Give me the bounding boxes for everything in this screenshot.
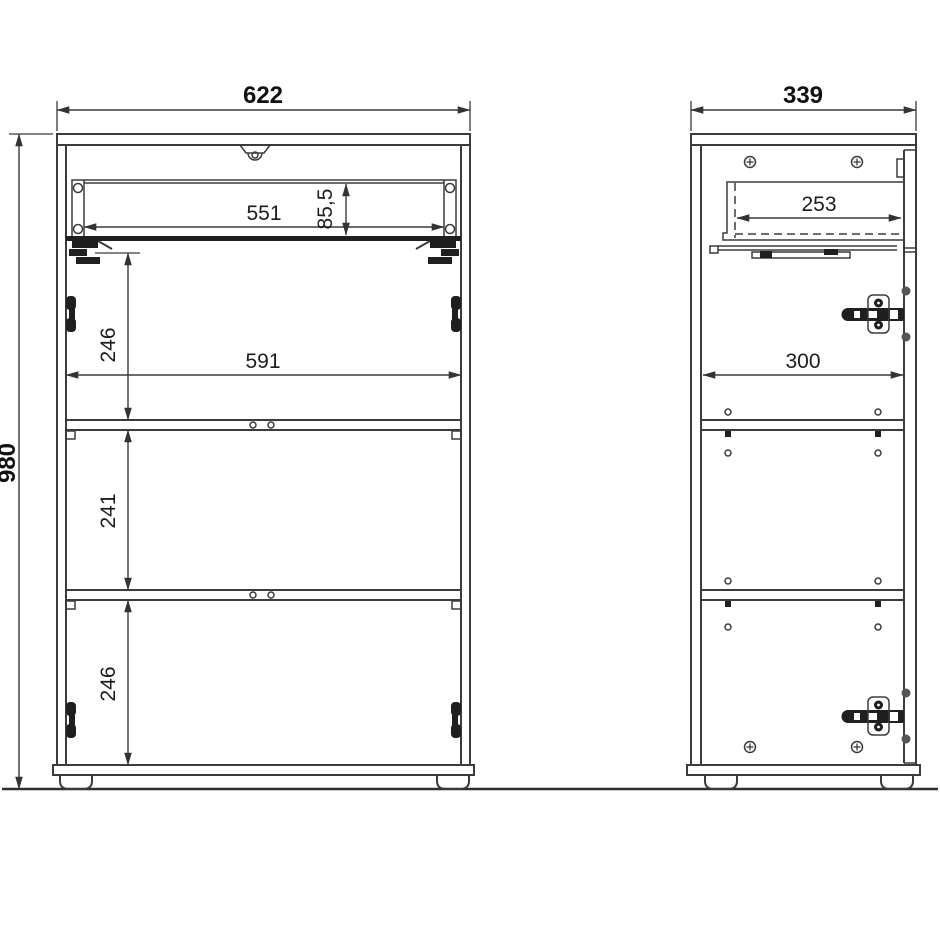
shelf-lower-side: [701, 590, 904, 607]
dim-overall-width: 622: [57, 82, 470, 131]
dim-lower-section-height: 246: [97, 600, 128, 765]
dim-drawer-depth: 253: [737, 193, 901, 218]
front-view: 622 980 551 85,5 246 591 241: [0, 82, 474, 789]
dim-label-interior-width: 591: [245, 350, 280, 373]
foot-front-right: [437, 775, 469, 789]
foot-front-left: [60, 775, 92, 789]
hinge-plate-lower-right-icon: [451, 702, 461, 738]
dim-upper-section-height: 246: [95, 253, 140, 420]
hinge-plate-lower-left-icon: [66, 702, 76, 738]
screw-icon-top-back: [745, 157, 756, 168]
screw-icon-bottom-front: [852, 742, 863, 753]
shelf-upper-side: [701, 420, 904, 437]
shelf-lower-front: [66, 590, 461, 609]
side-view: 339 253 300: [687, 82, 920, 789]
dim-label-lower-section-height: 246: [97, 666, 120, 701]
dim-drawer-opening-width: 551: [84, 202, 444, 227]
screw-icon-bottom-back: [745, 742, 756, 753]
hinge-plate-upper-right-icon: [451, 296, 461, 332]
cam-lock-icon: [240, 145, 270, 160]
dim-label-middle-section-height: 241: [97, 493, 120, 528]
shelf-upper-front: [66, 420, 461, 439]
dim-label-overall-height: 980: [0, 443, 21, 483]
dim-label-drawer-depth: 253: [801, 193, 836, 216]
dim-interior-width: 591: [66, 350, 461, 375]
hinge-icon-lower: [842, 689, 911, 744]
foot-side-front: [881, 775, 913, 789]
dim-overall-depth: 339: [691, 82, 916, 131]
cabinet-carcass-side: [687, 134, 920, 775]
dim-overall-height: 980: [0, 134, 53, 789]
dim-interior-depth: 300: [703, 350, 903, 375]
drawer-slide-right-icon: [428, 241, 459, 264]
cabinet-dimension-drawing: 622 980 551 85,5 246 591 241: [0, 0, 940, 940]
door-panel-side: [897, 150, 916, 763]
dim-label-overall-width: 622: [243, 82, 283, 109]
hinge-icon-upper: [842, 287, 911, 342]
dim-middle-section-height: 241: [97, 430, 128, 590]
shelf-pin-holes: [725, 409, 881, 630]
screw-icon-top-front: [852, 157, 863, 168]
dim-label-drawer-opening-width: 551: [246, 202, 281, 225]
dim-label-upper-section-height: 246: [97, 327, 120, 362]
dim-label-drawer-height: 85,5: [314, 189, 337, 230]
foot-side-back: [705, 775, 737, 789]
dim-label-overall-depth: 339: [783, 82, 823, 109]
hinge-plate-upper-left-icon: [66, 296, 76, 332]
dim-label-interior-depth: 300: [785, 350, 820, 373]
